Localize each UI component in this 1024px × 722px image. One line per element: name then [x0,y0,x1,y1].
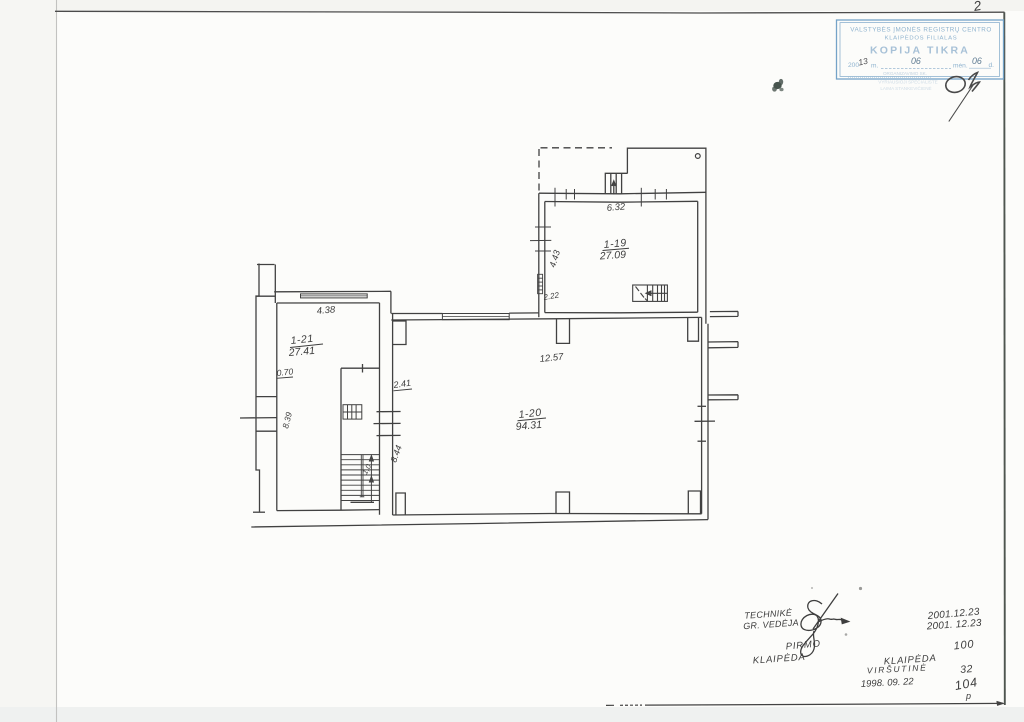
svg-text:94.31: 94.31 [515,419,542,433]
svg-text:100: 100 [953,638,975,652]
svg-text:mėn.: mėn. [953,63,968,70]
svg-text:27.09: 27.09 [598,249,626,263]
svg-text:6.32: 6.32 [606,201,626,214]
svg-text:KLAIPĖDOS FILIALAS: KLAIPĖDOS FILIALAS [885,34,958,41]
svg-text:0.70: 0.70 [276,366,294,378]
svg-text:27.41: 27.41 [287,345,315,359]
svg-text:06: 06 [972,56,982,66]
svg-text:VALSTYBĖS ĮMONĖS REGISTRŲ CENT: VALSTYBĖS ĮMONĖS REGISTRŲ CENTRO [850,25,992,34]
svg-text:32: 32 [960,663,974,676]
svg-text:d.: d. [989,62,995,69]
svg-text:4.38: 4.38 [316,304,336,317]
svg-text:06: 06 [911,56,921,66]
svg-text:m.: m. [871,63,878,70]
svg-text:ORGANIZAVIMO SK.: ORGANIZAVIMO SK. [883,71,927,76]
svg-text:VYRIAUSIOJI SPECIALISTĖ: VYRIAUSIOJI SPECIALISTĖ [878,79,937,85]
svg-text:p: p [965,691,971,701]
svg-text:LAIMA STANKEVIČIENĖ: LAIMA STANKEVIČIENĖ [880,85,931,91]
svg-text:KOPIJA TIKRA: KOPIJA TIKRA [870,45,970,57]
